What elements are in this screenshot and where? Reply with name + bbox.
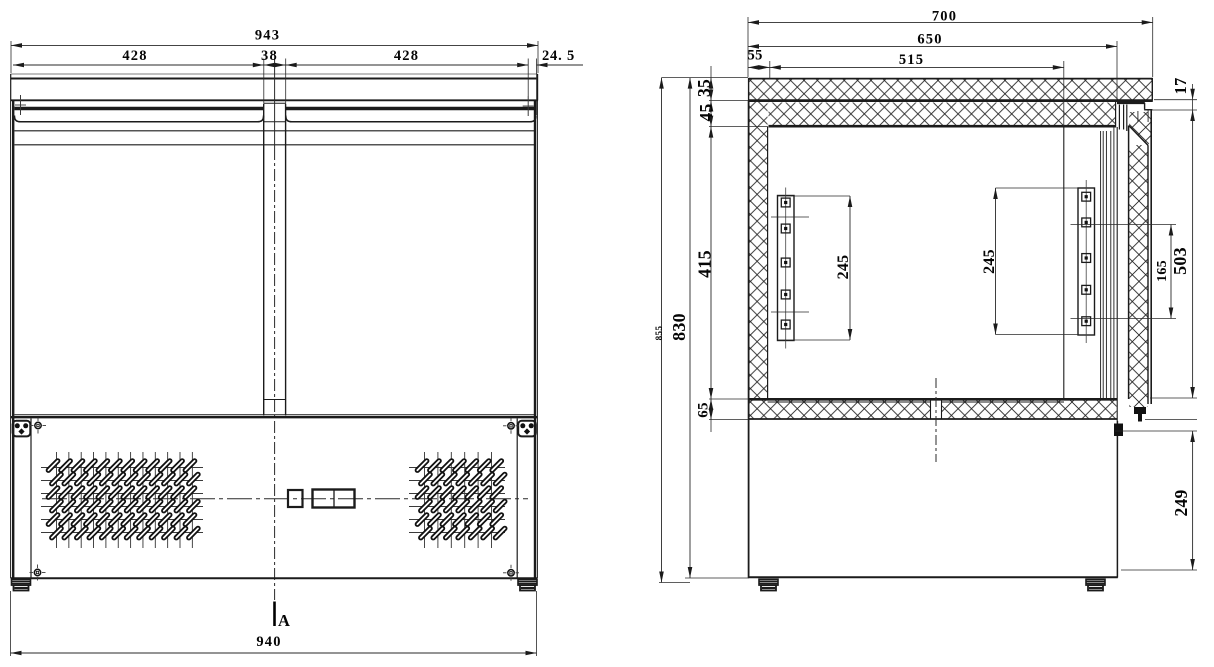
svg-text:415: 415: [695, 250, 715, 278]
svg-text:245: 245: [835, 255, 852, 280]
svg-text:650: 650: [917, 32, 942, 48]
svg-text:428: 428: [122, 48, 147, 64]
svg-text:17: 17: [1171, 78, 1190, 95]
svg-text:245: 245: [981, 249, 998, 274]
svg-text:503: 503: [1170, 247, 1190, 275]
svg-text:165: 165: [1155, 260, 1170, 282]
svg-text:55: 55: [748, 47, 763, 63]
svg-text:855: 855: [654, 326, 664, 341]
svg-text:700: 700: [932, 8, 957, 24]
svg-text:943: 943: [255, 27, 280, 43]
svg-text:515: 515: [899, 52, 924, 68]
svg-text:65: 65: [696, 402, 712, 417]
svg-text:45: 45: [696, 104, 716, 122]
svg-text:428: 428: [394, 48, 419, 64]
svg-text:249: 249: [1171, 490, 1191, 517]
svg-text:38: 38: [261, 48, 278, 64]
svg-text:830: 830: [669, 313, 689, 341]
svg-text:24. 5: 24. 5: [542, 48, 575, 64]
svg-text:940: 940: [256, 634, 281, 650]
svg-text:A: A: [278, 611, 290, 630]
svg-text:35: 35: [694, 79, 714, 97]
